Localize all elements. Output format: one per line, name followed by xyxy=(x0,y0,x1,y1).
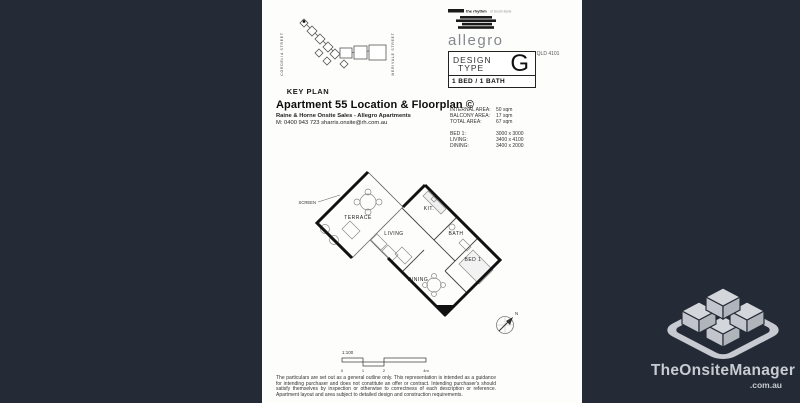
room-label-bath: BATH xyxy=(449,231,464,237)
design-type-main: DESIGN TYPE G xyxy=(449,52,535,75)
design-type-letter: G xyxy=(510,54,531,74)
design-type-box: DESIGN TYPE G 1 BED / 1 BATH xyxy=(448,51,536,88)
north-compass: N xyxy=(496,311,518,334)
watermark: TheOnsiteManager .com.au xyxy=(648,284,798,390)
watermark-domain: .com.au xyxy=(648,380,798,390)
tagline-bold: the rhythm xyxy=(466,9,487,14)
key-plan-drawing: CORDELIA STREET MERIVALE STREET KEY PLAN xyxy=(274,6,414,104)
room-label-dining: DINING xyxy=(408,277,429,283)
scale-tick: 0 xyxy=(341,368,344,373)
design-word-2: TYPE xyxy=(453,64,510,73)
design-type-label: DESIGN TYPE xyxy=(453,56,510,73)
subject-building-marker xyxy=(303,20,306,23)
screenshot-canvas: CORDELIA STREET MERIVALE STREET KEY PLAN… xyxy=(0,0,800,403)
tagline-rest: of South Bank xyxy=(490,10,512,14)
key-plan-building-outline xyxy=(300,19,386,68)
cubes-logo-icon xyxy=(648,284,798,364)
scale-bar: 1:100 0 1 2 4m xyxy=(341,350,430,373)
scale-tick: 4m xyxy=(423,368,429,373)
area-table: INTERNAL AREA: 50 sqm BALCONY AREA: 17 s… xyxy=(450,107,540,149)
disclaimer-text: The particulars are set out as a general… xyxy=(276,376,496,398)
room-label-terrace: TERRACE xyxy=(344,215,372,221)
scale-tick: 2 xyxy=(383,368,386,373)
dim-label: DINING: xyxy=(450,143,496,149)
wall-fill xyxy=(434,305,456,317)
room-label-bed1: BED 1 xyxy=(465,257,482,263)
dim-value: 3400 x 2000 xyxy=(496,143,524,149)
watermark-name: TheOnsiteManager xyxy=(648,362,798,380)
room-label-kitchen: KIT. xyxy=(424,206,435,212)
screen-label: SCREEN xyxy=(299,200,316,205)
screen-leader-line xyxy=(318,195,340,202)
brand-stripes xyxy=(456,16,496,29)
room-label-living: LIVING xyxy=(384,231,403,237)
street-label-merivale: MERIVALE STREET xyxy=(391,32,395,75)
area-label: TOTAL AREA: xyxy=(450,119,496,125)
allegro-logo-text: allegro xyxy=(448,32,540,49)
north-label: N xyxy=(515,311,518,316)
scale-tick: 1 xyxy=(362,368,365,373)
area-value: 67 sqm xyxy=(496,119,512,125)
floorplan-sheet: CORDELIA STREET MERIVALE STREET KEY PLAN… xyxy=(262,0,582,403)
street-label-cordelia: CORDELIA STREET xyxy=(280,32,284,75)
key-plan-caption: KEY PLAN xyxy=(287,87,330,96)
apartment-floorplan: SCREEN TERRACE LIVING KIT. BATH BED 1 DI… xyxy=(262,155,582,377)
table-row: DINING: 3400 x 2000 xyxy=(450,143,540,149)
brand-flag-graphic: the rhythm of South Bank xyxy=(448,8,540,31)
scale-ratio: 1:100 xyxy=(342,350,354,355)
